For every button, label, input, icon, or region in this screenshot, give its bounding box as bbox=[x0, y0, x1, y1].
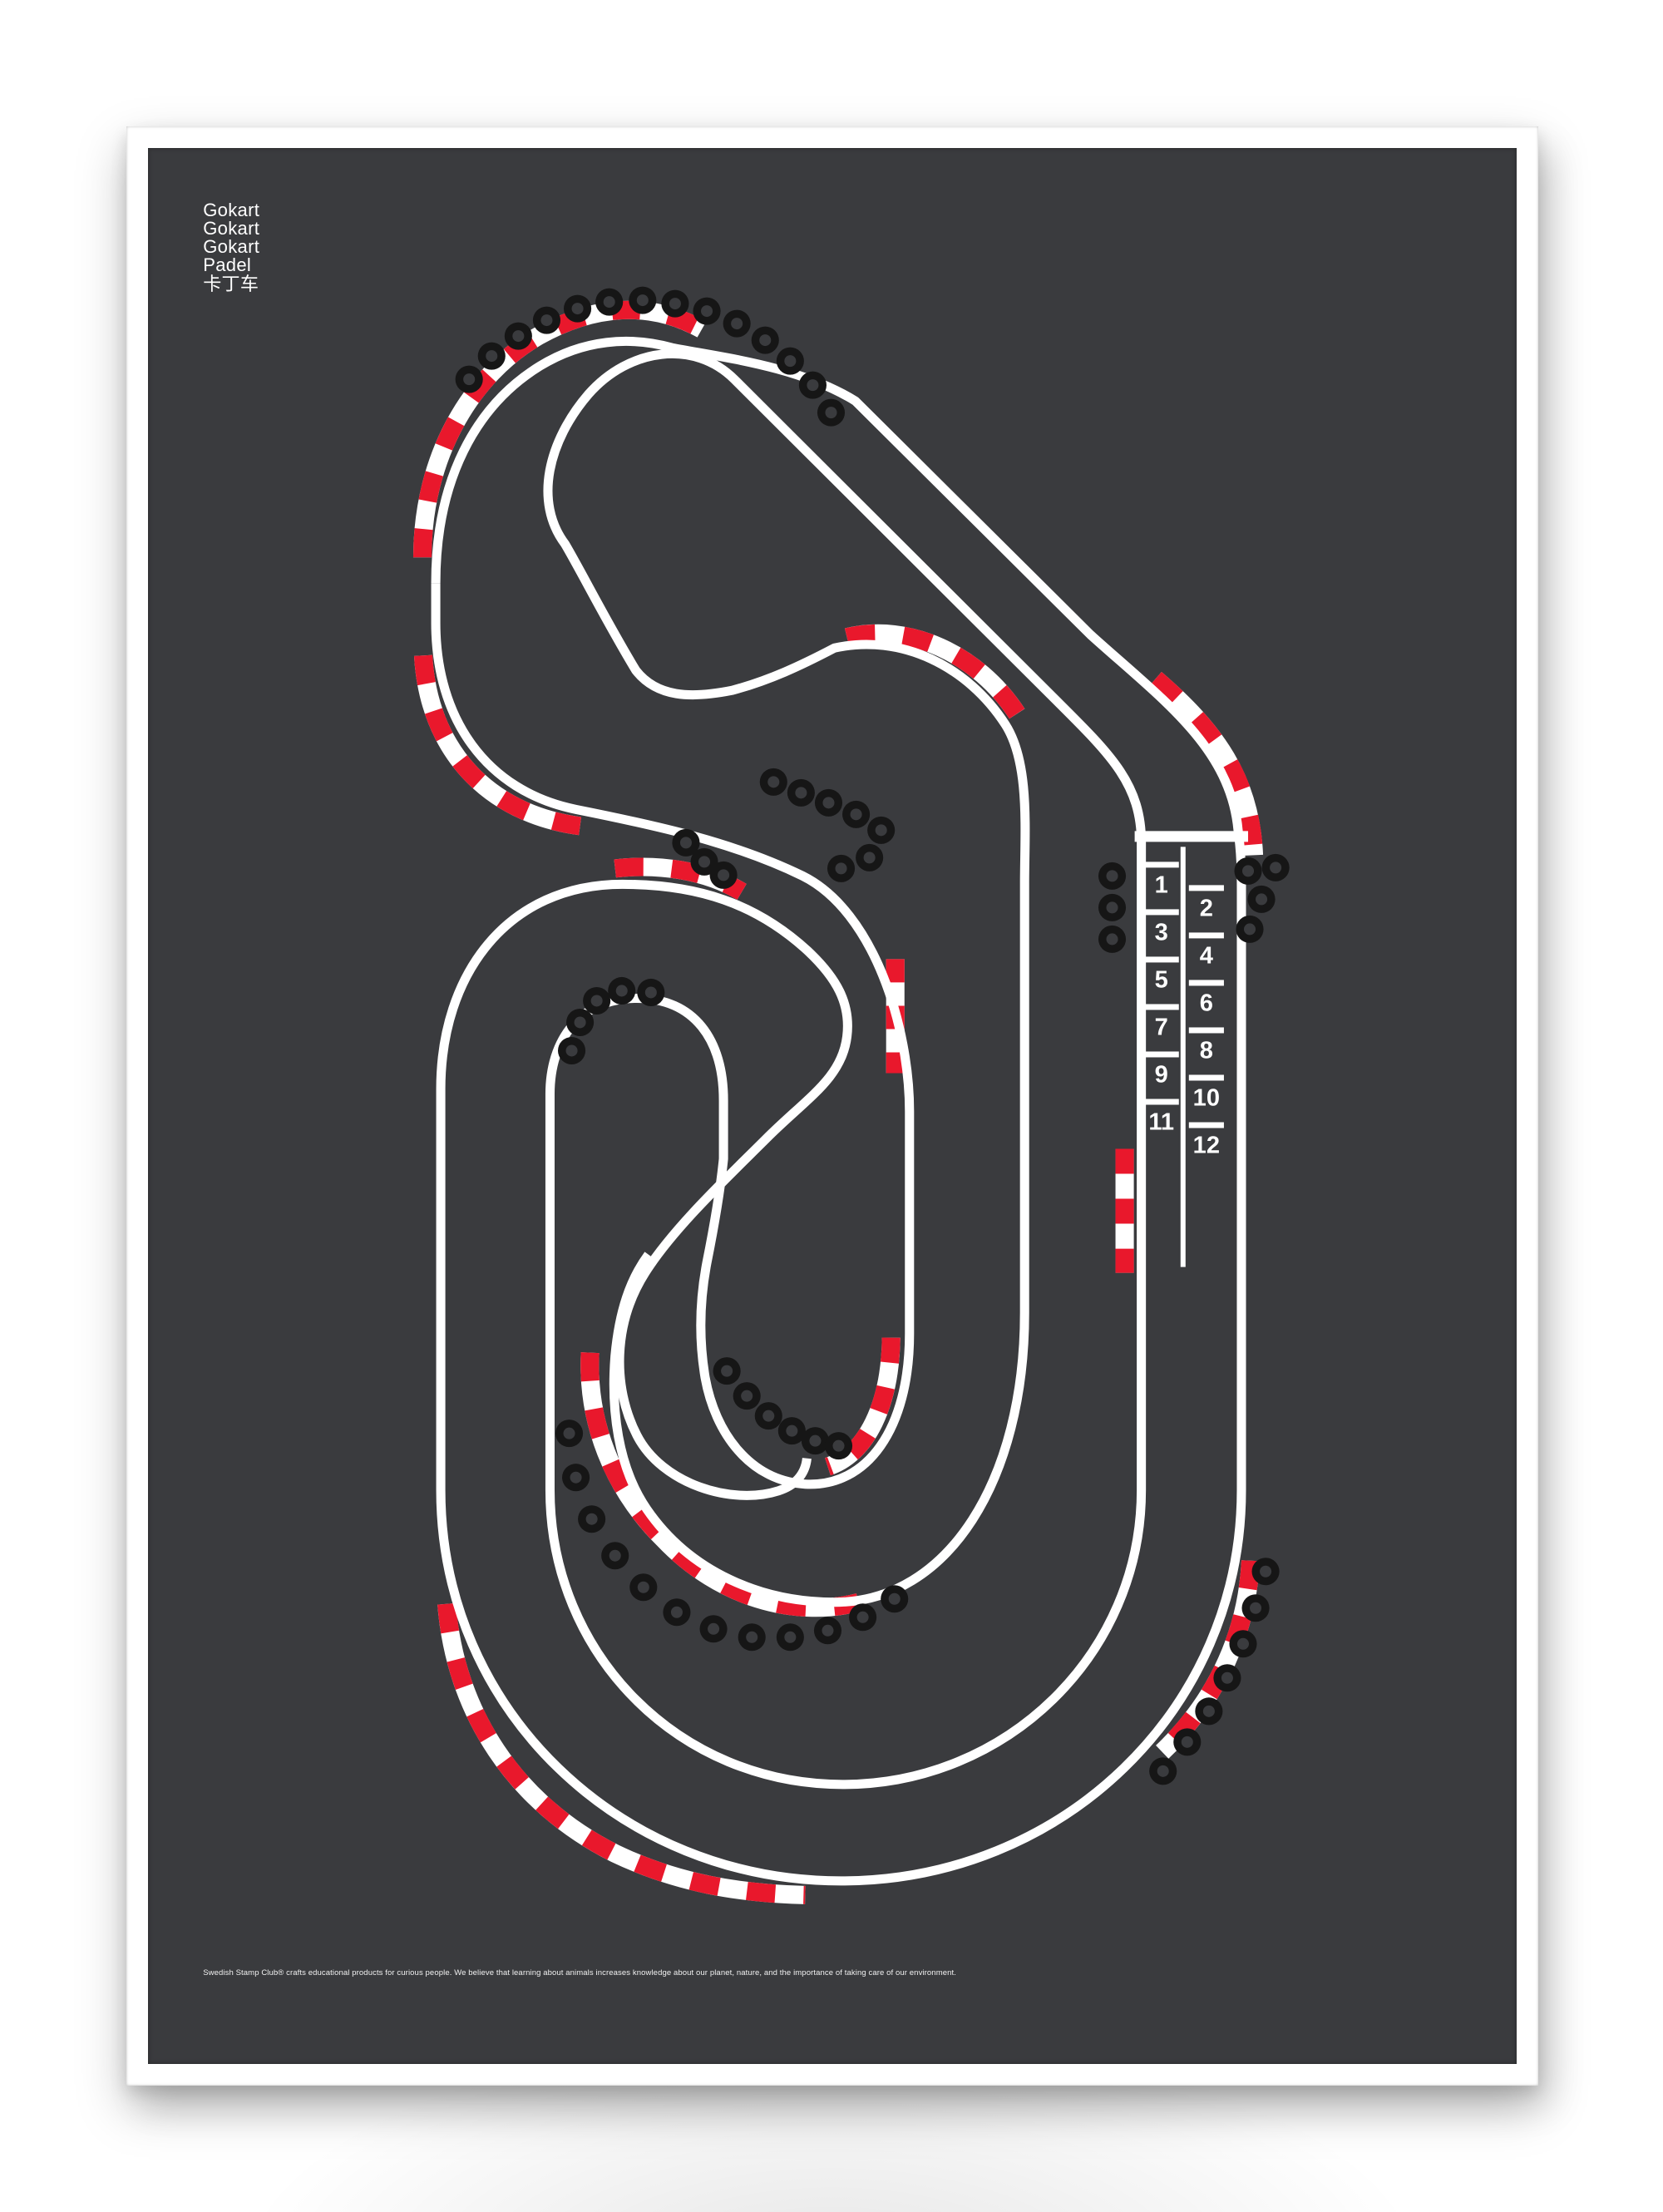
tire-icon bbox=[1195, 1697, 1222, 1725]
tire-icon bbox=[799, 372, 827, 399]
tire-icon bbox=[637, 979, 664, 1006]
tire-icon bbox=[723, 310, 751, 338]
tire-icon bbox=[760, 768, 787, 796]
grid-slot-line bbox=[1144, 1004, 1179, 1010]
tire-icon bbox=[562, 1464, 590, 1491]
poster-title: Gokart Gokart Gokart Padel 卡丁车 bbox=[203, 200, 259, 294]
tire-icon bbox=[827, 855, 855, 882]
grid-slot-line bbox=[1144, 1099, 1179, 1104]
tire-icon bbox=[777, 348, 804, 375]
tire-icon bbox=[1229, 1630, 1256, 1657]
tire-icon bbox=[1149, 1757, 1177, 1785]
grid-slot-number: 12 bbox=[1193, 1133, 1220, 1159]
tire-icon bbox=[456, 366, 483, 393]
tire-icon bbox=[1236, 916, 1263, 943]
start-finish-area: 135791124681012 bbox=[1135, 831, 1248, 1266]
grid-slot-line bbox=[1144, 862, 1179, 867]
tire-icon bbox=[1248, 886, 1276, 913]
tire-icon bbox=[533, 307, 560, 334]
grid-slot-number: 9 bbox=[1155, 1062, 1168, 1089]
tire-icon bbox=[555, 1420, 583, 1447]
grid-slot-line bbox=[1189, 1074, 1224, 1080]
tire-icon bbox=[755, 1402, 782, 1429]
track-edge-inner-loop bbox=[436, 353, 1142, 1784]
tire-icon bbox=[1098, 862, 1126, 890]
tire-icon bbox=[802, 1427, 829, 1454]
grid-slot-line bbox=[1189, 885, 1224, 891]
tire-icon bbox=[663, 1598, 690, 1626]
tire-icon bbox=[738, 1623, 766, 1651]
tire-icon bbox=[700, 1615, 728, 1642]
grid-slot-line bbox=[1189, 1123, 1224, 1128]
tire-icon bbox=[608, 977, 635, 1005]
tire-icon bbox=[1252, 1558, 1280, 1585]
title-line-5: 卡丁车 bbox=[203, 274, 259, 294]
tire-icon bbox=[1098, 894, 1126, 921]
footer-text: Swedish Stamp Club® crafts educational p… bbox=[203, 1968, 956, 1977]
grid-slot-number: 11 bbox=[1148, 1109, 1174, 1136]
tire-icon bbox=[583, 987, 610, 1015]
poster: 135791124681012 Gokart Gokart Gokart Pad… bbox=[148, 148, 1517, 2064]
tire-icon bbox=[564, 295, 591, 323]
tire-icon bbox=[733, 1382, 761, 1410]
tire-icon bbox=[777, 1623, 804, 1651]
tire-icon bbox=[505, 323, 532, 350]
tire-icon bbox=[842, 801, 870, 828]
tire-icon bbox=[693, 298, 720, 325]
tire-icon bbox=[629, 287, 656, 314]
grid-slot-number: 2 bbox=[1200, 895, 1213, 921]
grid-slot-number: 7 bbox=[1155, 1014, 1168, 1040]
tire-icon bbox=[578, 1505, 605, 1533]
tire-icon bbox=[856, 844, 883, 871]
grid-slot-line bbox=[1189, 932, 1224, 938]
tire-icon bbox=[1098, 926, 1126, 953]
grid-divider-line bbox=[1181, 847, 1186, 1266]
tire-icon bbox=[817, 399, 845, 427]
grid-slot-number: 6 bbox=[1200, 990, 1213, 1016]
tire-icon bbox=[713, 1357, 741, 1385]
title-line-4: Padel bbox=[203, 254, 251, 275]
tire-icon bbox=[1234, 857, 1261, 885]
tire-icon bbox=[787, 779, 815, 807]
tire-icon bbox=[1173, 1728, 1201, 1755]
track-edge-outer-loop bbox=[436, 341, 1241, 1880]
tire-icon bbox=[752, 327, 779, 354]
tire-icon bbox=[867, 817, 895, 844]
grid-slot-line bbox=[1189, 1027, 1224, 1033]
poster-frame: 135791124681012 Gokart Gokart Gokart Pad… bbox=[126, 126, 1538, 2086]
tire-icon bbox=[661, 290, 688, 318]
grid-slot-number: 4 bbox=[1200, 942, 1213, 969]
grid-slot-line bbox=[1144, 909, 1179, 915]
tire-icon bbox=[629, 1573, 657, 1601]
grid-slot-number: 10 bbox=[1193, 1085, 1220, 1112]
tire-icon bbox=[825, 1432, 852, 1459]
tire-icon bbox=[710, 862, 738, 889]
grid-slot-line bbox=[1144, 1051, 1179, 1057]
tire-icon bbox=[1213, 1664, 1241, 1691]
tire-icon bbox=[849, 1603, 876, 1631]
tire-icon bbox=[478, 343, 506, 370]
karting-track-diagram: 135791124681012 Gokart Gokart Gokart Pad… bbox=[148, 148, 1517, 2064]
tire-icon bbox=[566, 1009, 594, 1036]
grid-slot-line bbox=[1189, 980, 1224, 985]
tire-icon bbox=[881, 1585, 908, 1612]
tire-icon bbox=[814, 1617, 841, 1644]
grid-slot-number: 5 bbox=[1155, 966, 1168, 993]
tire-icon bbox=[601, 1542, 629, 1569]
grid-slot-number: 3 bbox=[1155, 919, 1168, 946]
tire-icon bbox=[1262, 854, 1290, 881]
tire-icon bbox=[1241, 1594, 1269, 1622]
tire-icon bbox=[558, 1037, 585, 1064]
start-finish-line bbox=[1135, 831, 1248, 842]
grid-slot-number: 1 bbox=[1155, 871, 1168, 898]
tire-icon bbox=[815, 789, 842, 817]
grid-slot-number: 8 bbox=[1200, 1038, 1213, 1064]
grid-slot-line bbox=[1144, 956, 1179, 962]
tire-icon bbox=[595, 289, 623, 316]
